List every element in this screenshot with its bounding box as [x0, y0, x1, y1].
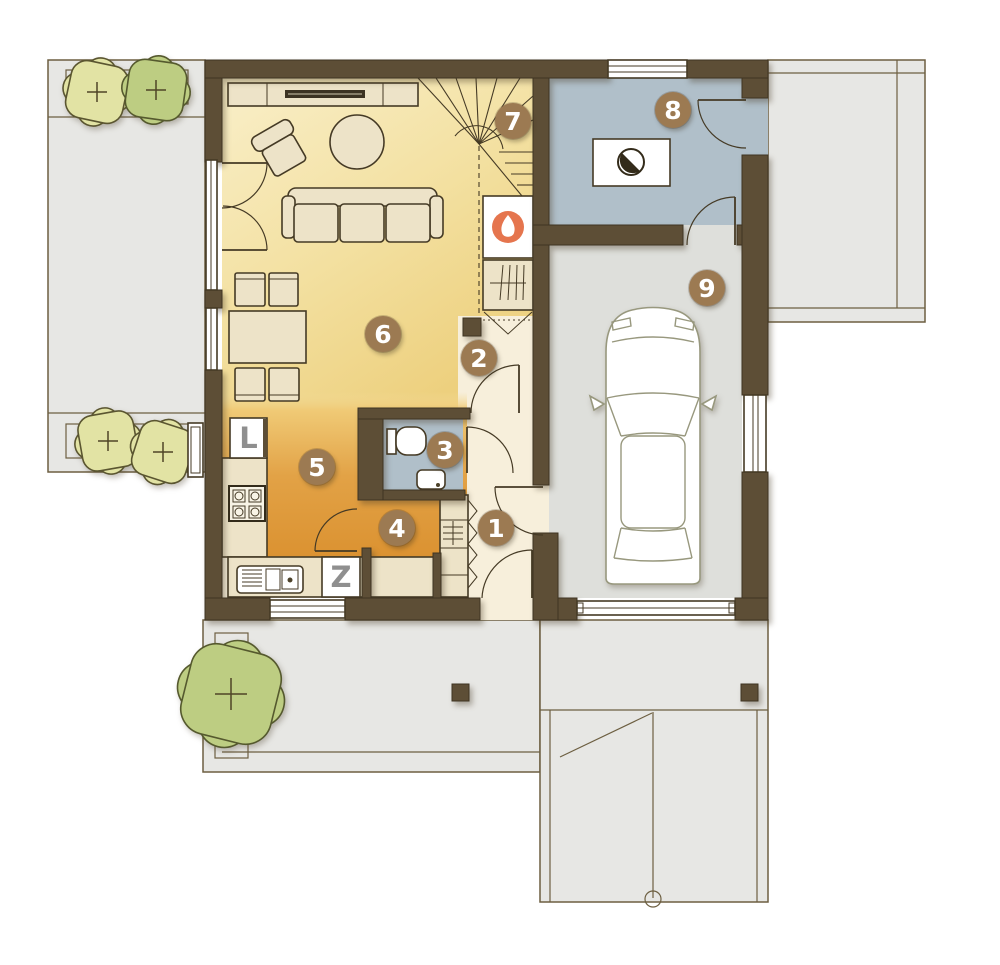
boiler-garage-threshold [683, 225, 737, 245]
garage-door [577, 601, 735, 615]
bathroom-wall [358, 419, 383, 500]
floor-plan-svg [0, 0, 1000, 965]
room-badge-8: 8 [655, 92, 691, 128]
stove [229, 486, 265, 521]
exterior-wall [533, 533, 558, 620]
room-badge-3: 3 [427, 432, 463, 468]
room-badge-4: 4 [379, 510, 415, 546]
doorway-threshold [533, 485, 549, 533]
toilet [387, 427, 426, 455]
exterior-wall [205, 290, 222, 308]
room-badge-6: 6 [365, 316, 401, 352]
exterior-wall [742, 78, 768, 98]
room-badge-1: 1 [478, 510, 514, 546]
exterior-wall [205, 60, 608, 78]
wash-basin [417, 470, 445, 489]
pillar [452, 684, 469, 701]
room-badge-2: 2 [461, 340, 497, 376]
sink [237, 566, 303, 593]
pantry-wall [362, 548, 371, 598]
window [206, 160, 217, 290]
boiler-room-wall [533, 225, 683, 245]
entrance-threshold [480, 598, 533, 620]
window [206, 308, 217, 370]
window [744, 395, 766, 472]
exterior-wall [687, 60, 768, 78]
boiler [593, 139, 670, 186]
room-badge-9: 9 [689, 270, 725, 306]
exterior-wall [742, 472, 768, 598]
exterior-wall [205, 78, 222, 162]
right-terrace [768, 60, 925, 322]
chimney [463, 318, 481, 336]
dining-chair [235, 273, 265, 306]
dining-chair [269, 273, 298, 306]
boiler-terrace-threshold [742, 98, 768, 155]
room-badge-7: 7 [495, 103, 531, 139]
floor-plan: 1 2 3 4 5 6 7 8 9 L Z [0, 0, 1000, 965]
exterior-wall [205, 598, 270, 620]
left-terrace [48, 60, 205, 472]
dining-chair [269, 368, 299, 401]
coffee-table [330, 115, 384, 169]
exterior-wall [742, 155, 768, 395]
bathroom-wall [383, 490, 465, 500]
driveway [540, 620, 768, 902]
room-badge-5: 5 [299, 449, 335, 485]
exterior-wall [205, 370, 222, 598]
sofa [282, 188, 443, 242]
exterior-wall [558, 598, 577, 620]
window [270, 600, 345, 618]
garage-partition-wall [533, 78, 549, 485]
window [608, 60, 687, 78]
car [590, 308, 716, 585]
fridge-label: L [230, 418, 267, 458]
exterior-wall [735, 598, 768, 620]
dining-table [229, 311, 306, 363]
hall-wall-stub [433, 553, 441, 598]
small-window [188, 423, 203, 477]
exterior-wall [345, 598, 480, 620]
pillar [741, 684, 758, 701]
bathroom-wall [358, 408, 470, 419]
dishwasher-label: Z [322, 557, 360, 597]
dining-chair [235, 368, 265, 401]
